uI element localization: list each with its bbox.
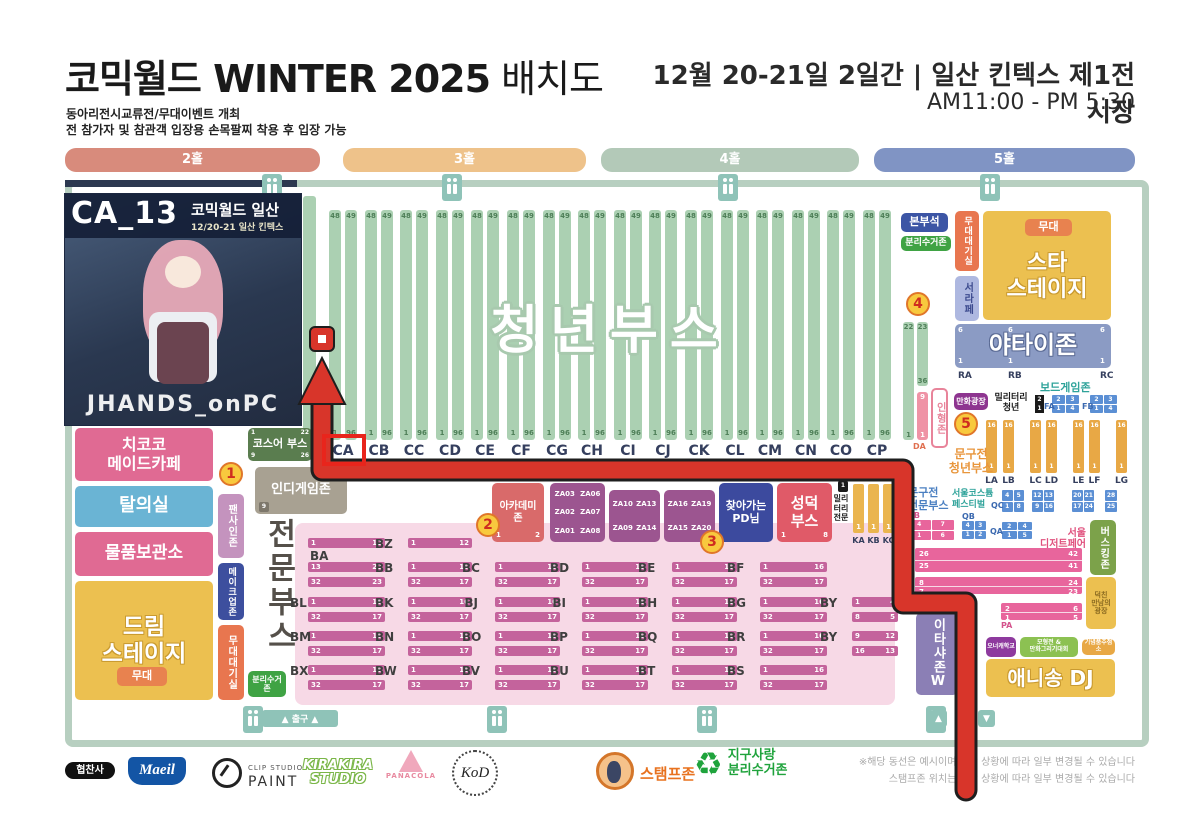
youth-col-top-num: 48	[827, 213, 839, 220]
k-col-bottom-num: 1	[868, 524, 879, 531]
pro-bar-num: 17	[372, 681, 382, 689]
l-col-bottom-num: 1	[986, 464, 997, 470]
mungu-pro-l2: 전문부스	[908, 499, 948, 512]
pb-box-num: 7	[932, 520, 955, 530]
qa-box-num: 1	[1002, 531, 1017, 539]
academy-zone-box: 아카데미존 1 2	[492, 483, 544, 542]
short-b-top: 23	[917, 324, 928, 331]
za-booth-num: ZA14	[636, 524, 656, 532]
pro-bar-num: 1	[675, 666, 680, 674]
youth-col-label-CK: CK	[684, 443, 714, 459]
pro-row-label-BI: BI	[550, 597, 566, 609]
recycle-icon: ♻	[694, 748, 723, 780]
pro-bar-num: 32	[411, 578, 421, 586]
pro-bar-num: 16	[855, 647, 865, 655]
military-youth-chip: 21	[1035, 395, 1044, 413]
restroom-person-glyph	[453, 184, 457, 194]
pro-bar-num: 17	[547, 647, 557, 655]
youth-col-top-num: 48	[792, 213, 804, 220]
fan-sign-zone: 팬사인존	[218, 494, 244, 558]
za-booth-num: ZA09	[613, 524, 633, 532]
hall-bar-5: 5홀	[874, 148, 1135, 172]
map-badge-1: 1	[219, 462, 243, 486]
doll-col-top: 9	[917, 394, 928, 401]
pro-row-label-BP: BP	[550, 631, 566, 643]
pro-bar-top-BZ: 112	[408, 538, 472, 548]
pro-row-label-BY: BY	[820, 597, 836, 609]
pro-bar-num: 32	[411, 681, 421, 689]
pro-bar-num: 1	[311, 598, 316, 606]
youth-col-top-num: 49	[345, 213, 357, 220]
pro-bar-num: 1	[675, 632, 680, 640]
yatai-bottom-num: 1	[958, 358, 963, 365]
youth-col-top-num: 48	[685, 213, 697, 220]
pro-row-label-BV: BV	[462, 665, 478, 677]
na-tag: NA	[316, 450, 331, 460]
qa-box: 21	[1002, 522, 1017, 539]
za-booth-num: ZA07	[580, 508, 600, 516]
pro-bar-bottom-BT: 3217	[672, 680, 737, 690]
youth-col-top-num: 49	[772, 213, 784, 220]
youth-column-CO-2	[843, 210, 855, 440]
mil-l1: 밀리	[834, 494, 849, 503]
pro-bar-bottom-BF: 3217	[760, 577, 827, 587]
mil-youth-l2: 청년	[1003, 403, 1020, 413]
youth-col-top-num: 48	[649, 213, 661, 220]
pro-bar-num: 17	[814, 613, 824, 621]
hall-bar-3: 3홀	[343, 148, 586, 172]
l-col-label: LG	[1112, 476, 1131, 486]
pro-bar-num: 32	[585, 647, 595, 655]
kirakira-line2: STUDIO	[310, 772, 365, 787]
panacola-text: PANACOLA	[383, 772, 439, 780]
pro-bar-num: 17	[635, 613, 645, 621]
green-column-wall	[303, 196, 316, 440]
pb-tag: PB	[908, 511, 920, 520]
l-col-label: LF	[1085, 476, 1104, 486]
pro-bar-num: 17	[814, 681, 824, 689]
pro-bar-num: 12	[885, 632, 895, 640]
seongdeok-booth-box: 성덕부스 1 8	[777, 483, 832, 542]
za-booth-num: ZA16	[668, 500, 688, 508]
seongdeok-line1: 성덕	[791, 495, 819, 512]
youth-col-top-num: 48	[721, 213, 733, 220]
l-col-bottom-num: 1	[1030, 464, 1041, 470]
pro-bar-num: 12	[459, 539, 469, 547]
pro-bar-bottom-BY: 85	[852, 612, 898, 622]
notice-line1: ※해당 동선은 예시이며 현장 상황에 따라 일부 변경될 수 있습니다	[735, 753, 1135, 768]
za-booth-num: ZA15	[668, 524, 688, 532]
youth-column-CB-1	[365, 210, 377, 440]
pro-bar-num: 32	[411, 647, 421, 655]
pro-row-label-BC: BC	[462, 562, 478, 574]
pro-bar-num: 1	[585, 666, 590, 674]
dream-stage-line1: 드림	[123, 614, 165, 640]
booth-ad-inset: CA_13 코믹월드 일산 12/20-21 일산 킨텍스 JHANDS_onP…	[65, 194, 301, 425]
inset-artist-handle: JHANDS_onPC	[65, 392, 301, 417]
pro-row-label-BX: BX	[290, 665, 306, 677]
pro-bar-num: 32	[763, 578, 773, 586]
pro-row-label-BZ: BZ	[375, 538, 391, 550]
qb-box-num: 4	[962, 521, 974, 530]
youth-col-label-CA: CA	[328, 443, 358, 459]
yatai-col-label: RA	[958, 371, 972, 381]
academy-line1: 아카데미	[500, 501, 537, 513]
pro-bar-bottom-BI: 3217	[582, 612, 648, 622]
pro-bar-num: 32	[675, 613, 685, 621]
youth-col-label-CL: CL	[720, 443, 750, 459]
board-booth-num: 4	[1104, 405, 1117, 414]
restroom-person-glyph	[729, 184, 733, 194]
pro-row-label-BK: BK	[375, 597, 391, 609]
youth-col-bottom-num: 96	[701, 430, 713, 437]
youth-col-top-num: 49	[665, 213, 677, 220]
meet-l2: 만남의	[1091, 599, 1110, 607]
youth-booth-watermark: 청년부스	[450, 288, 770, 363]
pro-row-label-BG: BG	[727, 597, 743, 609]
short-a-top: 22	[903, 324, 914, 331]
pro-bar-num: 32	[411, 613, 421, 621]
anisong-dj-box: 애니송 DJ	[986, 659, 1115, 697]
q-group-4: 2825	[1105, 490, 1117, 512]
restroom-icon	[980, 174, 1000, 201]
pro-bar-num: 32	[498, 578, 508, 586]
pro-bar-num: 4	[890, 598, 895, 606]
qa-box-num: 2	[1002, 522, 1017, 530]
youth-col-top-num: 49	[843, 213, 855, 220]
pro-row-label-BD: BD	[550, 562, 566, 574]
za-booth-num: ZA10	[613, 500, 633, 508]
k-col-label: KC	[880, 536, 897, 545]
youth-col-label-CM: CM	[755, 443, 785, 459]
youth-column-CD-1	[436, 210, 448, 440]
pro-row-label-BF: BF	[727, 562, 743, 574]
pro-bar-num: 1	[675, 563, 680, 571]
l-col-label: LB	[999, 476, 1018, 486]
subtitle-line2: 전 참가자 및 참관객 입장용 손목팔찌 착용 후 입장 가능	[66, 121, 346, 138]
pa-bar-num: 2	[1005, 605, 1010, 613]
pro-bar-bottom-BV: 3217	[495, 680, 560, 690]
youth-col-bottom-num: 1	[507, 430, 519, 437]
pro-bar-num: 1	[585, 632, 590, 640]
pa-bar-num: 6	[1073, 605, 1078, 613]
youth-col-top-num: 48	[329, 213, 341, 220]
youth-col-top-num: 48	[863, 213, 875, 220]
l-col-bottom-num: 1	[1046, 464, 1057, 470]
pro-bar-num: 17	[724, 578, 734, 586]
pro-bar-num: 32	[311, 578, 321, 586]
panacola-logo: PANACOLA	[383, 750, 439, 780]
youth-col-top-num: 49	[737, 213, 749, 220]
mil-l2: 터리	[834, 504, 849, 513]
board-booth-num: 3	[1066, 395, 1079, 404]
seoul-costume-festival-label: 서울코스튬페스티벌	[952, 489, 994, 511]
youth-col-bottom-num: 1	[329, 430, 341, 437]
youth-col-bottom-num: 96	[523, 430, 535, 437]
youth-col-top-num: 48	[507, 213, 519, 220]
youth-col-bottom-num: 1	[614, 430, 626, 437]
q-group-1-num: 4	[1002, 490, 1013, 501]
za-booth-num: ZA08	[580, 527, 600, 535]
board-cell-col: 34	[1104, 395, 1117, 413]
youth-col-bottom-num: 96	[772, 430, 784, 437]
youth-column-CP-1	[863, 210, 875, 440]
pro-bar-top-BR: 116	[760, 631, 827, 641]
cosplayer-booth-box: 코스어 부스 1 22 9 26	[248, 428, 312, 461]
model-l2: 만화그리기대회	[1030, 647, 1069, 654]
youth-col-bottom-num: 1	[756, 430, 768, 437]
pa-tag: PA	[1001, 621, 1012, 630]
mil-youth-l1: 밀리터리	[994, 393, 1027, 403]
pro-bar-num: 17	[635, 647, 645, 655]
youth-col-top-num: 49	[559, 213, 571, 220]
youth-col-top-num: 48	[365, 213, 377, 220]
q-group-3-num: 17	[1072, 502, 1083, 513]
pro-bar-num: 32	[498, 647, 508, 655]
board-booth-num: 4	[1066, 405, 1079, 414]
youth-col-top-num: 49	[808, 213, 820, 220]
short-b-bottom: 36	[917, 378, 928, 385]
makeup-zone: 메이크업존	[218, 563, 244, 620]
restroom-icon	[697, 706, 717, 733]
l-col-top-num: 16	[1073, 423, 1084, 429]
pro-bar-bottom-BG: 3217	[760, 612, 827, 622]
youth-col-label-CE: CE	[470, 443, 500, 459]
youth-col-bottom-num: 96	[381, 430, 393, 437]
star-stage-line1: 스타	[1027, 251, 1067, 276]
restroom-person-glyph	[254, 716, 258, 726]
restroom-person-glyph	[447, 184, 451, 194]
pro-bar-num: 17	[459, 647, 469, 655]
l-col-top-num: 16	[1089, 423, 1100, 429]
youth-col-top-num: 48	[436, 213, 448, 220]
exit-sign-down: ▼	[978, 710, 995, 727]
pro-bar-num: 1	[763, 563, 768, 571]
restroom-person-glyph	[991, 184, 995, 194]
pro-bar-num: 1	[311, 539, 316, 547]
map-badge-5: 5	[954, 412, 978, 436]
youth-col-top-num: 48	[471, 213, 483, 220]
pa-bar-2: 824723	[915, 577, 1082, 594]
q-group-4-num: 28	[1105, 490, 1117, 501]
pro-row-label-BA: BA	[310, 550, 328, 562]
pro-row-label-BL: BL	[290, 597, 306, 609]
pro-bar-num: 32	[311, 613, 321, 621]
pro-bar-top-BY: 912	[852, 631, 898, 641]
pro-bar-bottom-BH: 3217	[672, 612, 737, 622]
youth-col-top-num: 48	[578, 213, 590, 220]
youth-col-bottom-num: 1	[400, 430, 412, 437]
youth-col-top-num: 48	[400, 213, 412, 220]
pro-bar-top-BL: 116	[308, 597, 385, 607]
clip-studio-line2: PAINT	[248, 774, 298, 790]
youth-col-top-num: 49	[523, 213, 535, 220]
youth-col-bottom-num: 1	[863, 430, 875, 437]
page-title-suffix: 배치도	[490, 57, 603, 101]
map-badge-3: 3	[700, 530, 724, 554]
pro-bar-bottom-BK: 3217	[408, 612, 472, 622]
seongdeok-num-r: 8	[823, 532, 828, 539]
pro-row-label-BM: BM	[290, 631, 306, 643]
pro-bar-num: 1	[763, 666, 768, 674]
restroom-person-glyph	[498, 716, 502, 726]
za-booth-num: ZA03	[555, 490, 575, 498]
q-group-1-num: 5	[1014, 490, 1025, 501]
youth-col-top-num: 49	[452, 213, 464, 220]
pro-bar-bottom-BQ: 3217	[672, 646, 737, 656]
pro-bar-num: 32	[498, 613, 508, 621]
pro-bar-num: 8	[855, 613, 860, 621]
youth-col-bottom-num: 96	[416, 430, 428, 437]
qa-box-num: 4	[1018, 522, 1033, 530]
pro-row-label-BU: BU	[550, 665, 566, 677]
pa-bar-num: 42	[1068, 550, 1078, 558]
mil-youth-chip-b: 1	[1037, 405, 1041, 412]
boardgame-zone-label: 보드게임존	[1040, 379, 1112, 395]
l-col-top-num: 16	[1046, 423, 1057, 429]
youth-col-bottom-num: 96	[559, 430, 571, 437]
owner-chara-school-box: 오너캐학교	[986, 637, 1016, 657]
youth-col-bottom-num: 1	[543, 430, 555, 437]
star-stage-stage-badge: 무대	[1025, 219, 1072, 236]
qb-tag: QB	[962, 512, 975, 521]
za-block-1: ZA03ZA06ZA02ZA07ZA01ZA08	[550, 483, 605, 542]
restroom-person-glyph	[267, 184, 271, 194]
inset-character-face	[165, 256, 201, 288]
pro-bar-bottom-BY: 1613	[852, 646, 898, 656]
youth-column-CN-1	[792, 210, 804, 440]
manhwa-plaza-box: 만화광장	[954, 393, 988, 410]
youth-col-bottom-num: 96	[345, 430, 357, 437]
youth-col-bottom-num: 1	[578, 430, 590, 437]
costume-l2: 페스티벌	[952, 500, 985, 510]
za-block-2: ZA10ZA13ZA09ZA14	[609, 490, 660, 542]
pro-bar-num: 32	[763, 647, 773, 655]
k-col-bottom-num: 1	[883, 524, 894, 531]
pa-bar-3: 2615	[1001, 603, 1082, 620]
pro-bar-num: 17	[724, 681, 734, 689]
pro-row-label-BB: BB	[375, 562, 391, 574]
youth-column-CM-2	[772, 210, 784, 440]
youth-col-label-CP: CP	[862, 443, 892, 459]
pro-bar-top-BF: 116	[760, 562, 827, 572]
l-col-bottom-num: 1	[1003, 464, 1014, 470]
seongdeok-num-l: 1	[781, 532, 786, 539]
maid-cafe-line1: 치코코	[122, 436, 166, 454]
pro-row-label-BW: BW	[375, 665, 391, 677]
hq-box: 본부석	[901, 213, 948, 232]
pro-bar-num: 1	[585, 598, 590, 606]
l-col-top-num: 16	[1030, 423, 1041, 429]
za-booth-num: ZA13	[636, 500, 656, 508]
pro-bar-top-BA: 112	[308, 538, 385, 548]
pro-bar-num: 13	[311, 563, 321, 571]
youth-col-bottom-num: 1	[649, 430, 661, 437]
pro-bar-bottom-BN: 3217	[408, 646, 472, 656]
youth-col-label-CI: CI	[613, 443, 643, 459]
itasha-zone-box: 이타샤존W	[916, 613, 958, 695]
pro-bar-bottom-BO: 3217	[495, 646, 560, 656]
pd-line2: PD님	[732, 513, 759, 526]
doll-col-bottom: 1	[917, 432, 928, 439]
youth-column-CP-2	[879, 210, 891, 440]
qa-box: 45	[1018, 522, 1033, 539]
dream-stage-stage-badge: 무대	[117, 667, 167, 686]
pa-bar-num: 7	[919, 588, 924, 596]
dressing-room-box: 탈의실	[75, 486, 213, 527]
restroom-person-glyph	[492, 716, 496, 726]
yatai-top-num: 6	[1100, 327, 1105, 334]
youth-column-CA-1	[329, 210, 341, 440]
q-group-2-num: 9	[1032, 502, 1043, 513]
l-col-bottom-num: 1	[1116, 464, 1127, 470]
pro-bar-num: 1	[411, 632, 416, 640]
pa-bar-num: 8	[919, 579, 924, 587]
recycle-zone-top: 분리수거존	[901, 236, 951, 251]
pa-bar-1: 26422541	[915, 548, 1082, 572]
pro-bar-top-BM: 116	[308, 631, 385, 641]
youth-col-bottom-num: 96	[843, 430, 855, 437]
page-title-main: 코믹월드 WINTER 2025	[65, 57, 490, 101]
youth-column-CN-2	[808, 210, 820, 440]
military-pro-chip: 1	[838, 481, 848, 492]
youth-col-bottom-num: 96	[665, 430, 677, 437]
youth-col-label-CC: CC	[399, 443, 429, 459]
youth-column-CC-2	[416, 210, 428, 440]
youth-col-top-num: 49	[630, 213, 642, 220]
pro-bar-num: 5	[890, 613, 895, 621]
l-col-bottom-num: 1	[1073, 464, 1084, 470]
qa-tag: QA	[990, 527, 1003, 536]
pro-bar-num: 17	[459, 578, 469, 586]
pro-bar-bottom-BS: 3217	[760, 680, 827, 690]
q-group-2: 129	[1032, 490, 1043, 512]
pb-box: 41	[908, 520, 931, 540]
board-booth-num: 3	[1104, 395, 1117, 404]
cos-num-tl: 1	[251, 430, 255, 436]
stamp-zone-label: 스탬프존	[640, 763, 695, 784]
map-badge-2: 2	[476, 513, 500, 537]
l-col-label: LD	[1042, 476, 1061, 486]
pa-bar-num: 26	[919, 550, 929, 558]
yatai-bottom-num: 1	[1100, 358, 1105, 365]
event-floorplan-poster: { "header": { "title_main": "코믹월드 WINTER…	[0, 0, 1200, 828]
academy-num-r: 2	[535, 532, 540, 539]
qb-box-num: 3	[975, 521, 987, 530]
pro-bar-num: 32	[311, 647, 321, 655]
pro-row-label-BS: BS	[727, 665, 743, 677]
pro-bar-num: 1	[498, 666, 503, 674]
youth-col-bottom-num: 1	[365, 430, 377, 437]
q-group-3: 2017	[1072, 490, 1083, 512]
pro-bar-num: 17	[372, 647, 382, 655]
pro-row-label-BR: BR	[727, 631, 743, 643]
pro-bar-bottom-BP: 3217	[582, 646, 648, 656]
clip-studio-logo: CLIP STUDIOPAINT	[212, 757, 303, 789]
za-booth-num: ZA02	[555, 508, 575, 516]
clip-studio-text: CLIP STUDIOPAINT	[248, 757, 303, 789]
pro-bar-top-BA2: 1322	[308, 562, 385, 572]
restroom-icon	[442, 174, 462, 201]
pro-bar-num: 1	[311, 632, 316, 640]
restroom-person-glyph	[702, 716, 706, 726]
pro-bar-num: 16	[814, 666, 824, 674]
qb-box: 41	[962, 521, 974, 539]
clip-studio-line1: CLIP STUDIO	[248, 764, 303, 772]
kod-logo: KoD	[452, 750, 498, 796]
q-group-1-num: 8	[1014, 502, 1025, 513]
pro-bar-bottom-BX: 3217	[308, 680, 385, 690]
